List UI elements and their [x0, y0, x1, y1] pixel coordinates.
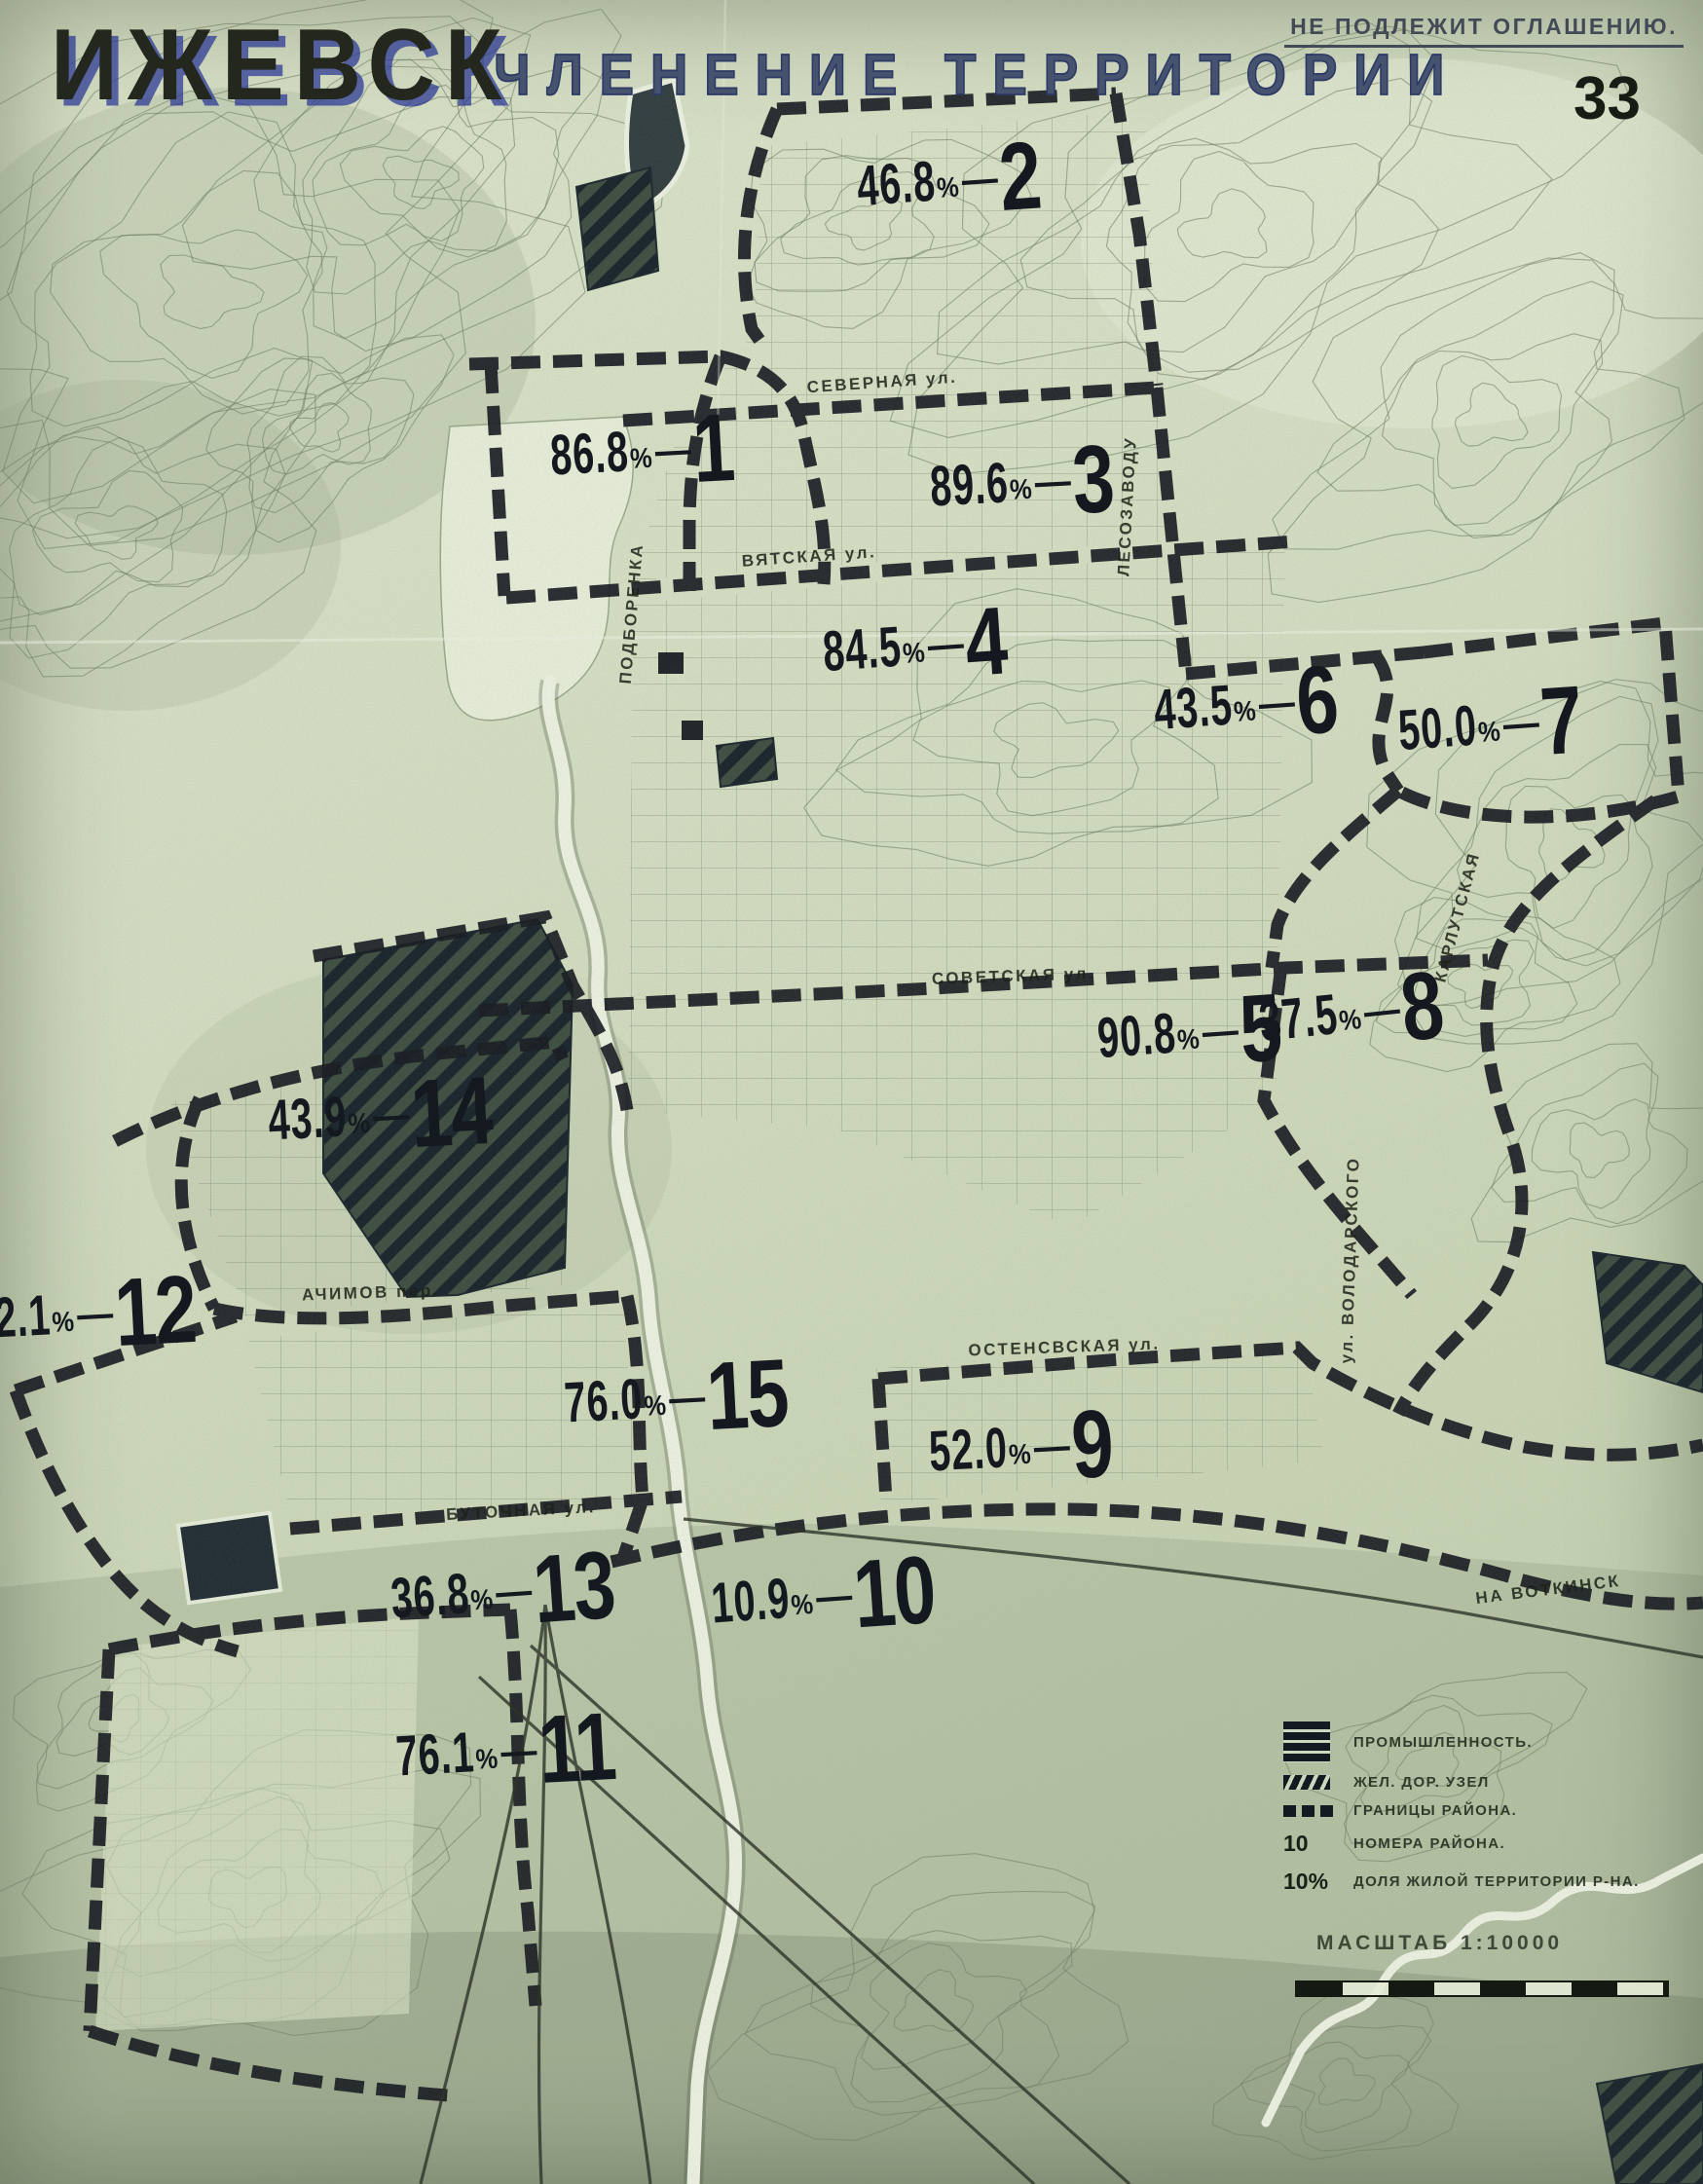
- legend-label: ПРОМЫШЛЕННОСТЬ.: [1353, 1734, 1533, 1751]
- district-label-11: 76.1%—11: [394, 1705, 617, 1797]
- legend-item-number: 10НОМЕРА РАЙОНА.: [1283, 1831, 1702, 1857]
- legend-symbol-industry-icon: [1283, 1721, 1340, 1762]
- district-label-2: 46.8%—2: [855, 134, 1043, 228]
- district-label-6: 43.5%—6: [1151, 658, 1339, 752]
- map-page: ИЖЕВСК ЧЛЕНЕНИЕ ТЕРРИТОРИИ НЕ ПОДЛЕЖИТ О…: [0, 0, 1703, 2184]
- map-legend: ПРОМЫШЛЕННОСТЬ.ЖЕЛ. ДОР. УЗЕЛГРАНИЦЫ РАЙ…: [1283, 1721, 1702, 1906]
- legend-label: ЖЕЛ. ДОР. УЗЕЛ: [1353, 1774, 1490, 1791]
- district-label-7: 50.0%—7: [1396, 678, 1584, 771]
- legend-item-boundary: ГРАНИЦЫ РАЙОНА.: [1283, 1802, 1702, 1819]
- sheet-number: 33: [1573, 64, 1641, 133]
- district-label-15: 76.0%—15: [563, 1351, 790, 1444]
- legend-item-railway: ЖЕЛ. ДОР. УЗЕЛ: [1283, 1774, 1702, 1791]
- legend-item-share: 10%ДОЛЯ ЖИЛОЙ ТЕРРИТОРИИ Р-НА.: [1283, 1869, 1702, 1895]
- legend-symbol-railway-icon: [1283, 1775, 1340, 1790]
- district-label-4: 84.5%—4: [821, 600, 1009, 693]
- legend-symbol-number-icon: 10: [1283, 1831, 1340, 1857]
- district-label-10: 10.9%—10: [709, 1548, 937, 1645]
- district-label-3: 89.6%—3: [928, 437, 1115, 528]
- legend-symbol-share-icon: 10%: [1283, 1869, 1340, 1895]
- legend-label: ГРАНИЦЫ РАЙОНА.: [1353, 1802, 1517, 1819]
- district-label-14: 43.9%—14: [266, 1069, 493, 1162]
- legend-symbol-boundary-icon: [1283, 1805, 1340, 1817]
- map-subtitle: ЧЛЕНЕНИЕ ТЕРРИТОРИИ: [494, 42, 1461, 108]
- legend-label: ДОЛЯ ЖИЛОЙ ТЕРРИТОРИИ Р-НА.: [1353, 1873, 1640, 1890]
- scale-bar: [1295, 1980, 1669, 1997]
- legend-items: ПРОМЫШЛЕННОСТЬ.ЖЕЛ. ДОР. УЗЕЛГРАНИЦЫ РАЙ…: [1283, 1721, 1702, 1895]
- legend-item-industry: ПРОМЫШЛЕННОСТЬ.: [1283, 1721, 1702, 1762]
- scale-label: МАСШТАБ 1:10000: [1316, 1932, 1563, 1955]
- district-label-13: 36.8%—13: [389, 1543, 616, 1640]
- district-label-9: 52.0%—9: [927, 1402, 1114, 1493]
- classification-note: НЕ ПОДЛЕЖИТ ОГЛАШЕНИЮ.: [1284, 14, 1684, 48]
- district-label-12: 42.1%—12: [0, 1269, 197, 1361]
- map-title: ИЖЕВСК: [51, 8, 511, 124]
- district-label-1: 86.8%—1: [548, 407, 735, 498]
- legend-label: НОМЕРА РАЙОНА.: [1353, 1835, 1505, 1852]
- district-label-5: 90.8%—5: [1094, 986, 1282, 1080]
